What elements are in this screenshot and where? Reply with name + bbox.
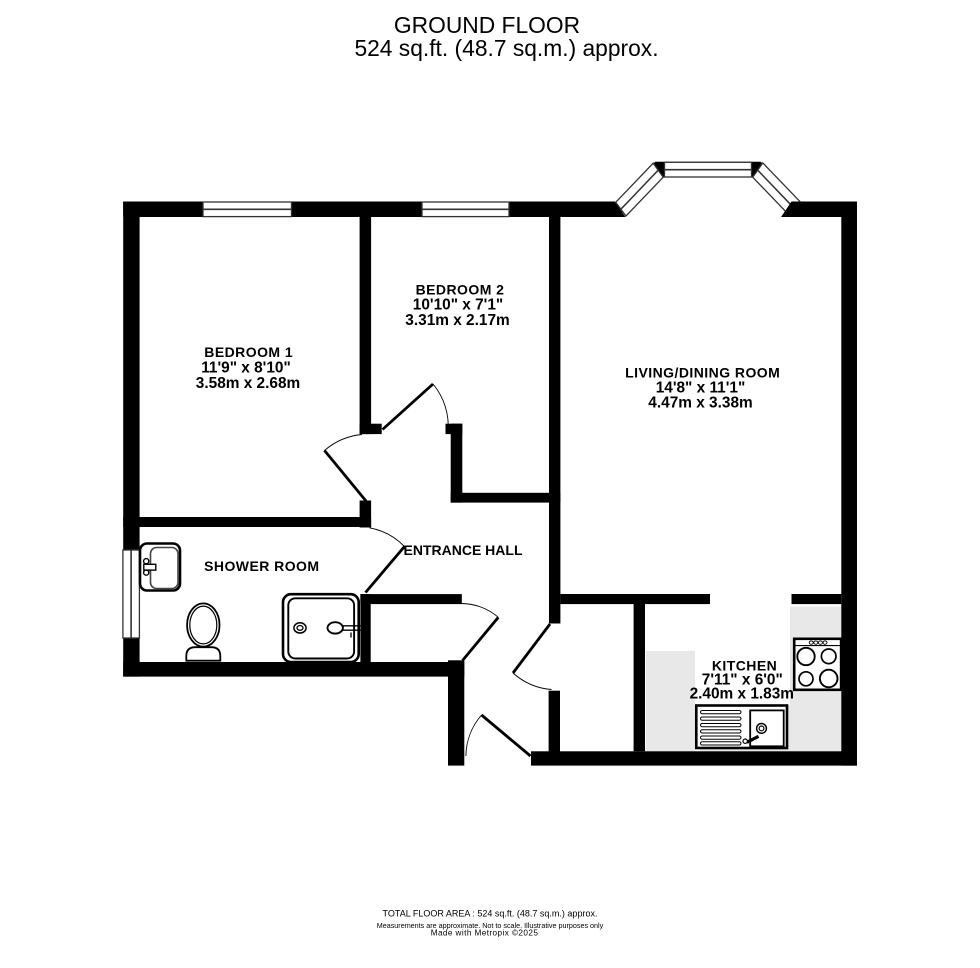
svg-text:10'10" x 7'1": 10'10" x 7'1" bbox=[413, 297, 503, 314]
svg-text:524 sq.ft. (48.7 sq.m.) approx: 524 sq.ft. (48.7 sq.m.) approx. bbox=[354, 35, 658, 61]
svg-text:3.31m x 2.17m: 3.31m x 2.17m bbox=[405, 312, 509, 329]
svg-text:BEDROOM 2: BEDROOM 2 bbox=[416, 282, 505, 298]
svg-text:3.58m x 2.68m: 3.58m x 2.68m bbox=[196, 375, 300, 392]
svg-text:SHOWER ROOM: SHOWER ROOM bbox=[204, 558, 319, 574]
svg-text:2.40m x 1.83m: 2.40m x 1.83m bbox=[690, 686, 794, 703]
svg-text:Made with Metropix ©2025: Made with Metropix ©2025 bbox=[431, 929, 539, 938]
svg-text:ENTRANCE HALL: ENTRANCE HALL bbox=[404, 542, 523, 558]
svg-text:LIVING/DINING ROOM: LIVING/DINING ROOM bbox=[625, 365, 780, 381]
svg-text:TOTAL FLOOR AREA : 524 sq.ft.: TOTAL FLOOR AREA : 524 sq.ft. (48.7 sq.m… bbox=[383, 909, 598, 919]
svg-text:11'9" x 8'10": 11'9" x 8'10" bbox=[201, 360, 291, 377]
svg-text:4.47m x 3.38m: 4.47m x 3.38m bbox=[648, 395, 752, 412]
svg-text:BEDROOM 1: BEDROOM 1 bbox=[204, 344, 293, 360]
